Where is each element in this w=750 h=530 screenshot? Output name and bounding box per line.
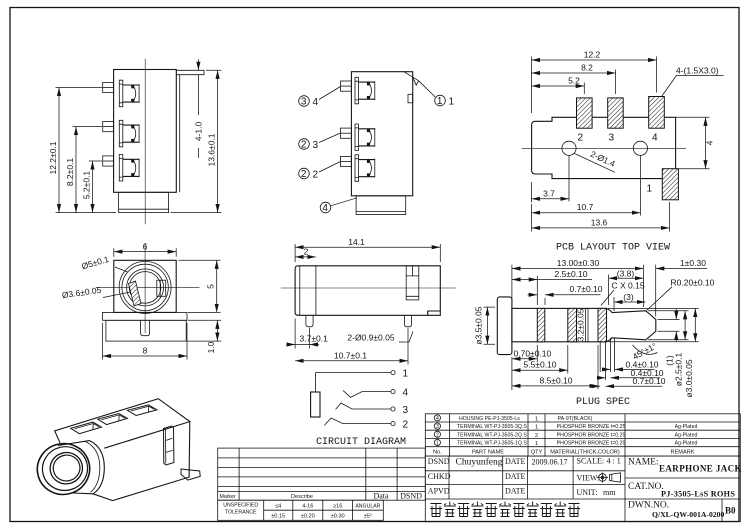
svg-text:≤4: ≤4 <box>275 504 281 510</box>
svg-text:2: 2 <box>578 133 584 144</box>
svg-text:CAT.NO.: CAT.NO. <box>628 482 664 492</box>
svg-text:13.6: 13.6 <box>591 217 608 227</box>
svg-text:2: 2 <box>436 432 439 438</box>
svg-text:R0.20±0.10: R0.20±0.10 <box>671 277 715 287</box>
svg-text:C X 0.15: C X 0.15 <box>612 280 645 290</box>
svg-text:4-1.0: 4-1.0 <box>194 122 204 142</box>
svg-text:4: 4 <box>652 133 658 144</box>
svg-text:UNIT:: UNIT: <box>577 488 598 497</box>
svg-text:PART NAME: PART NAME <box>472 449 504 455</box>
svg-text:12.2±0.1: 12.2±0.1 <box>48 141 58 174</box>
svg-text:UNSPECIFIED: UNSPECIFIED <box>223 503 258 509</box>
svg-text:13.6±0.1: 13.6±0.1 <box>207 133 217 166</box>
svg-text:5.5±0.10: 5.5±0.10 <box>523 360 556 370</box>
svg-text:mm: mm <box>603 488 616 497</box>
svg-text:DWN.NO.: DWN.NO. <box>628 501 669 511</box>
svg-text:NAME:: NAME: <box>628 458 659 468</box>
svg-text:2: 2 <box>301 140 307 151</box>
svg-text:DATE: DATE <box>505 472 526 481</box>
svg-text:Q/XL-QW-001A-0200: Q/XL-QW-001A-0200 <box>652 510 724 519</box>
svg-text:Describe: Describe <box>291 494 313 500</box>
svg-text:3: 3 <box>313 140 319 151</box>
svg-text:2-Ø0.9±0.05: 2-Ø0.9±0.05 <box>347 333 394 343</box>
svg-text:10.7±0.1: 10.7±0.1 <box>334 350 367 360</box>
svg-text:±5°: ±5° <box>364 514 372 520</box>
svg-text:4: 4 <box>403 388 409 399</box>
svg-text:ø2.5±0.1: ø2.5±0.1 <box>674 352 684 386</box>
svg-text:PA-9T(BLACK): PA-9T(BLACK) <box>558 416 593 422</box>
svg-text:Ag-Plated: Ag-Plated <box>675 441 698 447</box>
svg-text:4: 4 <box>322 203 328 214</box>
svg-text:TERMINAL WT-PJ-3505-2Q.S: TERMINAL WT-PJ-3505-2Q.S <box>457 432 527 438</box>
svg-text:DSND: DSND <box>428 457 450 466</box>
svg-text:4 : 1: 4 : 1 <box>607 457 621 466</box>
svg-text:0.7±0.10: 0.7±0.10 <box>633 376 666 386</box>
svg-text:REMARK: REMARK <box>671 449 695 455</box>
svg-text:PHOSPHOR BRONZE t=0.25: PHOSPHOR BRONZE t=0.25 <box>557 441 626 447</box>
svg-text:2: 2 <box>301 169 307 180</box>
svg-text:DATE: DATE <box>505 486 526 495</box>
svg-text:0.7±0.10: 0.7±0.10 <box>569 284 602 294</box>
svg-text:1.0: 1.0 <box>206 341 216 353</box>
svg-text:(3.8): (3.8) <box>617 268 635 278</box>
svg-text:2: 2 <box>313 170 319 181</box>
svg-text:0.70±0.10: 0.70±0.10 <box>514 348 552 358</box>
svg-text:6: 6 <box>143 241 148 251</box>
svg-text:CHKD: CHKD <box>428 472 451 481</box>
svg-text:4: 4 <box>705 140 715 145</box>
svg-text:CIRCUIT DIAGRAM: CIRCUIT DIAGRAM <box>316 437 406 448</box>
svg-text:5.2: 5.2 <box>568 76 580 86</box>
svg-text:1: 1 <box>436 441 439 447</box>
svg-text:PJ-3505-LsS ROHS: PJ-3505-LsS ROHS <box>661 490 735 499</box>
svg-text:10.7: 10.7 <box>577 202 594 212</box>
svg-text:PHOSPHOR BRONZE t=0.25: PHOSPHOR BRONZE t=0.25 <box>557 432 626 438</box>
svg-text:5.2±0.1: 5.2±0.1 <box>82 171 92 200</box>
svg-text:3: 3 <box>609 133 615 144</box>
svg-text:2: 2 <box>535 433 538 439</box>
svg-text:TOLERANCE: TOLERANCE <box>225 510 257 516</box>
svg-text:TERMINAL WT-PJ-3505-3Q.S: TERMINAL WT-PJ-3505-3Q.S <box>457 424 527 430</box>
svg-text:1: 1 <box>535 441 538 447</box>
svg-text:14.1: 14.1 <box>348 237 365 247</box>
svg-text:Marker: Marker <box>220 494 236 500</box>
svg-text:3.7: 3.7 <box>543 188 555 198</box>
svg-text:4-(1.5X3.0): 4-(1.5X3.0) <box>676 66 719 76</box>
svg-text:VIEW:: VIEW: <box>577 474 600 483</box>
svg-text:2.5±0.10: 2.5±0.10 <box>554 269 587 279</box>
svg-text:3: 3 <box>403 405 409 416</box>
svg-text:±0.15: ±0.15 <box>271 514 285 520</box>
svg-text:5: 5 <box>206 284 216 289</box>
svg-text:HOUSING PE-PJ-3505-Ls: HOUSING PE-PJ-3505-Ls <box>459 416 520 422</box>
svg-text:SCALE:: SCALE: <box>577 457 605 466</box>
svg-text:±0.20: ±0.20 <box>301 514 315 520</box>
svg-text:TERMINAL WT-PJ-3505-1Q.S: TERMINAL WT-PJ-3505-1Q.S <box>457 441 527 447</box>
svg-text:MATERIAL(THICK,COLOR): MATERIAL(THICK,COLOR) <box>550 449 620 455</box>
svg-text:8.2±0.1: 8.2±0.1 <box>65 158 75 187</box>
svg-text:Chuyunfeng: Chuyunfeng <box>456 457 503 468</box>
svg-text:PLUG SPEC: PLUG SPEC <box>576 397 630 408</box>
svg-text:QTY: QTY <box>531 449 543 455</box>
svg-text:ø3.0±0.05: ø3.0±0.05 <box>684 359 694 397</box>
svg-text:PHOSPHOR BRONZE t=0.25: PHOSPHOR BRONZE t=0.25 <box>557 424 626 430</box>
svg-text:2009.06.17: 2009.06.17 <box>532 457 568 466</box>
svg-text:3: 3 <box>436 424 439 430</box>
svg-text:8: 8 <box>143 346 148 356</box>
svg-text:ø3.5±0.05: ø3.5±0.05 <box>474 306 484 344</box>
svg-text:EARPHONE JACK: EARPHONE JACK <box>659 464 742 474</box>
svg-text:Ag-Plated: Ag-Plated <box>675 432 698 438</box>
svg-text:Data: Data <box>373 492 389 501</box>
svg-text:3: 3 <box>301 97 307 108</box>
svg-text:8.5±0.10: 8.5±0.10 <box>539 375 572 385</box>
svg-text:≥16: ≥16 <box>333 504 342 510</box>
svg-text:8.2: 8.2 <box>581 63 593 73</box>
svg-text:4: 4 <box>313 97 319 108</box>
svg-text:(3): (3) <box>623 292 634 302</box>
svg-text:APVD: APVD <box>428 486 450 495</box>
svg-text:1: 1 <box>535 425 538 431</box>
svg-text:1: 1 <box>437 96 443 107</box>
svg-text:DSND: DSND <box>400 492 422 501</box>
svg-text:13.00±0.30: 13.00±0.30 <box>557 258 600 268</box>
svg-text:1: 1 <box>647 184 653 195</box>
svg-text:3.2±0.05: 3.2±0.05 <box>576 308 586 341</box>
svg-text:B0: B0 <box>725 506 736 516</box>
svg-text:ANGULAR: ANGULAR <box>355 504 380 510</box>
svg-text:4: 4 <box>436 416 439 422</box>
svg-text:Ag-Plated: Ag-Plated <box>675 424 698 430</box>
svg-text:PCB LAYOUT TOP VIEW: PCB LAYOUT TOP VIEW <box>556 243 670 254</box>
svg-text:1: 1 <box>449 97 455 108</box>
svg-text:3.7±0.1: 3.7±0.1 <box>300 334 329 344</box>
svg-text:2: 2 <box>403 420 409 431</box>
svg-text:No.: No. <box>433 449 442 455</box>
svg-text:1: 1 <box>403 369 409 380</box>
svg-text:12.2: 12.2 <box>584 50 601 60</box>
svg-text:2: 2 <box>304 247 309 257</box>
svg-text:DATE: DATE <box>505 457 526 466</box>
svg-text:4-16: 4-16 <box>302 504 313 510</box>
svg-text:1±0.30: 1±0.30 <box>680 258 706 268</box>
svg-text:±0.30: ±0.30 <box>331 514 345 520</box>
svg-text:1: 1 <box>535 416 538 422</box>
